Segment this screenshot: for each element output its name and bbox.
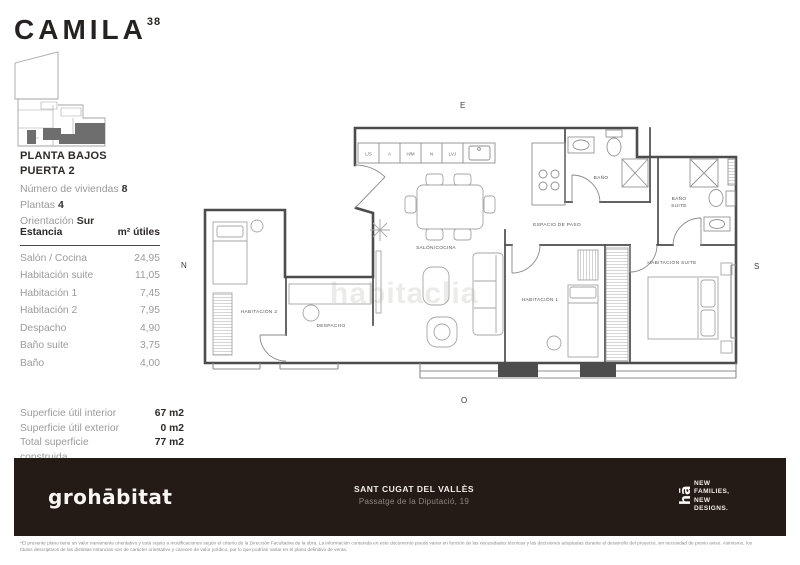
- brand-logo: CAMILA38: [14, 14, 161, 46]
- desk-chair-icon: [303, 305, 319, 321]
- room-label-bano-suite-1: BAÑO: [672, 195, 687, 202]
- bed-icon: [648, 277, 718, 339]
- plan-title: PLANTA BAJOS PUERTA 2: [20, 149, 107, 180]
- brochure-page: CAMILA38 PLANTA BAJOS PUERTA 2 Número de…: [0, 0, 800, 565]
- plan-title-line1: PLANTA BAJOS: [20, 149, 107, 164]
- bedroom2-furniture: [213, 220, 263, 355]
- footer-location-block: SANT CUGAT DEL VALLÈS Passatge de la Dip…: [354, 484, 474, 506]
- compass-east: E: [460, 101, 465, 110]
- room-label-hab-suite: HABITACIÓN SUITE: [647, 259, 696, 266]
- table-row: Habitación 27,95: [20, 305, 160, 316]
- room-label-espacio: ESPACIO DE PASO: [533, 222, 581, 228]
- site-location-plan-icon: [13, 50, 109, 150]
- summary-row: Superficie útil interior67 m2: [20, 407, 184, 422]
- compass-west: O: [461, 396, 467, 405]
- compass-north: N: [181, 261, 187, 270]
- interior-walls: [286, 128, 736, 363]
- brand-superscript: 38: [147, 16, 161, 28]
- detail-row: Plantas4: [20, 198, 127, 214]
- table-row: Despacho4,90: [20, 323, 160, 334]
- detail-value: 4: [58, 199, 64, 211]
- plan-title-line2: PUERTA 2: [20, 164, 107, 179]
- rooms-table: Estancia m² útiles Salón / Cocina24,95 H…: [20, 227, 160, 369]
- table-row: Baño4,00: [20, 358, 160, 369]
- armchair-icon: [427, 317, 457, 347]
- detail-row: Número de viviendas8: [20, 182, 127, 198]
- grohabitat-logo: grohābitat: [48, 485, 172, 509]
- floorplan: habitaclia E N S O: [180, 95, 765, 412]
- wardrobe-icon: [213, 293, 232, 355]
- kitchen-unit-label: L/S: [365, 152, 372, 157]
- kitchen-unit-label: H/M: [406, 152, 414, 157]
- plan-details: Número de viviendas8 Plantas4 Orientació…: [20, 182, 127, 229]
- footer-address: Passatge de la Diputació, 19: [354, 497, 474, 506]
- toilet-icon: [726, 191, 735, 206]
- rooms-table-header: Estancia m² útiles: [20, 227, 160, 246]
- wardrobe-icon: [606, 248, 628, 361]
- side-table-icon: [721, 263, 732, 275]
- side-table-icon: [251, 220, 263, 232]
- room-label-salon: SALÓN/COCINA: [416, 244, 456, 251]
- ha-logo-icon: hā: [678, 489, 694, 505]
- room-label-despacho: DESPACHO: [317, 323, 346, 329]
- wardrobe-icon: [578, 250, 598, 280]
- table-row: Salón / Cocina24,95: [20, 253, 160, 264]
- footer-tagline-block: hā NEW FAMILIES, NEW DESIGNS.: [678, 480, 729, 514]
- footer-tagline: NEW FAMILIES, NEW DESIGNS.: [694, 480, 729, 514]
- room-label-hab1: HABITACIÓN 1: [522, 296, 559, 303]
- brand-name: CAMILA: [14, 14, 147, 45]
- disclaimer-line2: títulos descriptivos de las distintas es…: [20, 547, 797, 554]
- suite-furniture: [648, 263, 732, 353]
- sink-icon: [568, 137, 594, 153]
- dining-table: [405, 174, 495, 240]
- detail-value: Sur: [77, 215, 95, 227]
- summary-row: Superficie útil exterior0 m2: [20, 422, 184, 437]
- watermark-text: habitaclia: [330, 277, 478, 310]
- legal-disclaimer: *El presente plano tiene un valor merame…: [20, 540, 797, 553]
- bedroom1-furniture: [547, 250, 598, 357]
- kitchen-unit-label: N: [430, 152, 433, 157]
- detail-label: Número de viviendas: [20, 183, 119, 195]
- room-label-bano: BAÑO: [594, 174, 609, 181]
- detail-label: Orientación: [20, 215, 74, 227]
- col-area: m² útiles: [118, 227, 160, 238]
- surface-summary: Superficie útil interior67 m2 Superficie…: [20, 407, 184, 465]
- cooktop-icon: [539, 170, 559, 190]
- room-label-bano-suite-2: SUITE: [671, 203, 687, 209]
- table-row: Habitación suite11,05: [20, 270, 160, 281]
- kitchen-unit-label: A: [388, 152, 391, 157]
- footer-location: SANT CUGAT DEL VALLÈS: [354, 484, 474, 494]
- detail-label: Plantas: [20, 199, 55, 211]
- bed-icon: [213, 222, 247, 284]
- kitchen-unit-label: LVJ: [449, 152, 456, 157]
- room-label-hab2: HABITACIÓN 2: [241, 308, 278, 315]
- floorplan-drawing: habitaclia E N S O: [180, 95, 765, 407]
- toilet-icon: [606, 130, 622, 137]
- footer-bar: grohābitat SANT CUGAT DEL VALLÈS Passatg…: [14, 458, 786, 536]
- compass-south: S: [754, 262, 759, 271]
- wall-piers: [498, 363, 616, 377]
- stool-icon: [547, 336, 561, 350]
- bed-icon: [568, 285, 598, 357]
- disclaimer-line1: *El presente plano tiene un valor merame…: [20, 540, 797, 547]
- doors: [260, 165, 701, 361]
- detail-value: 8: [122, 183, 128, 195]
- side-table-icon: [721, 341, 732, 353]
- table-row: Habitación 17,45: [20, 288, 160, 299]
- radiator-icon: [728, 159, 735, 185]
- col-room: Estancia: [20, 227, 62, 238]
- table-row: Baño suite3,75: [20, 340, 160, 351]
